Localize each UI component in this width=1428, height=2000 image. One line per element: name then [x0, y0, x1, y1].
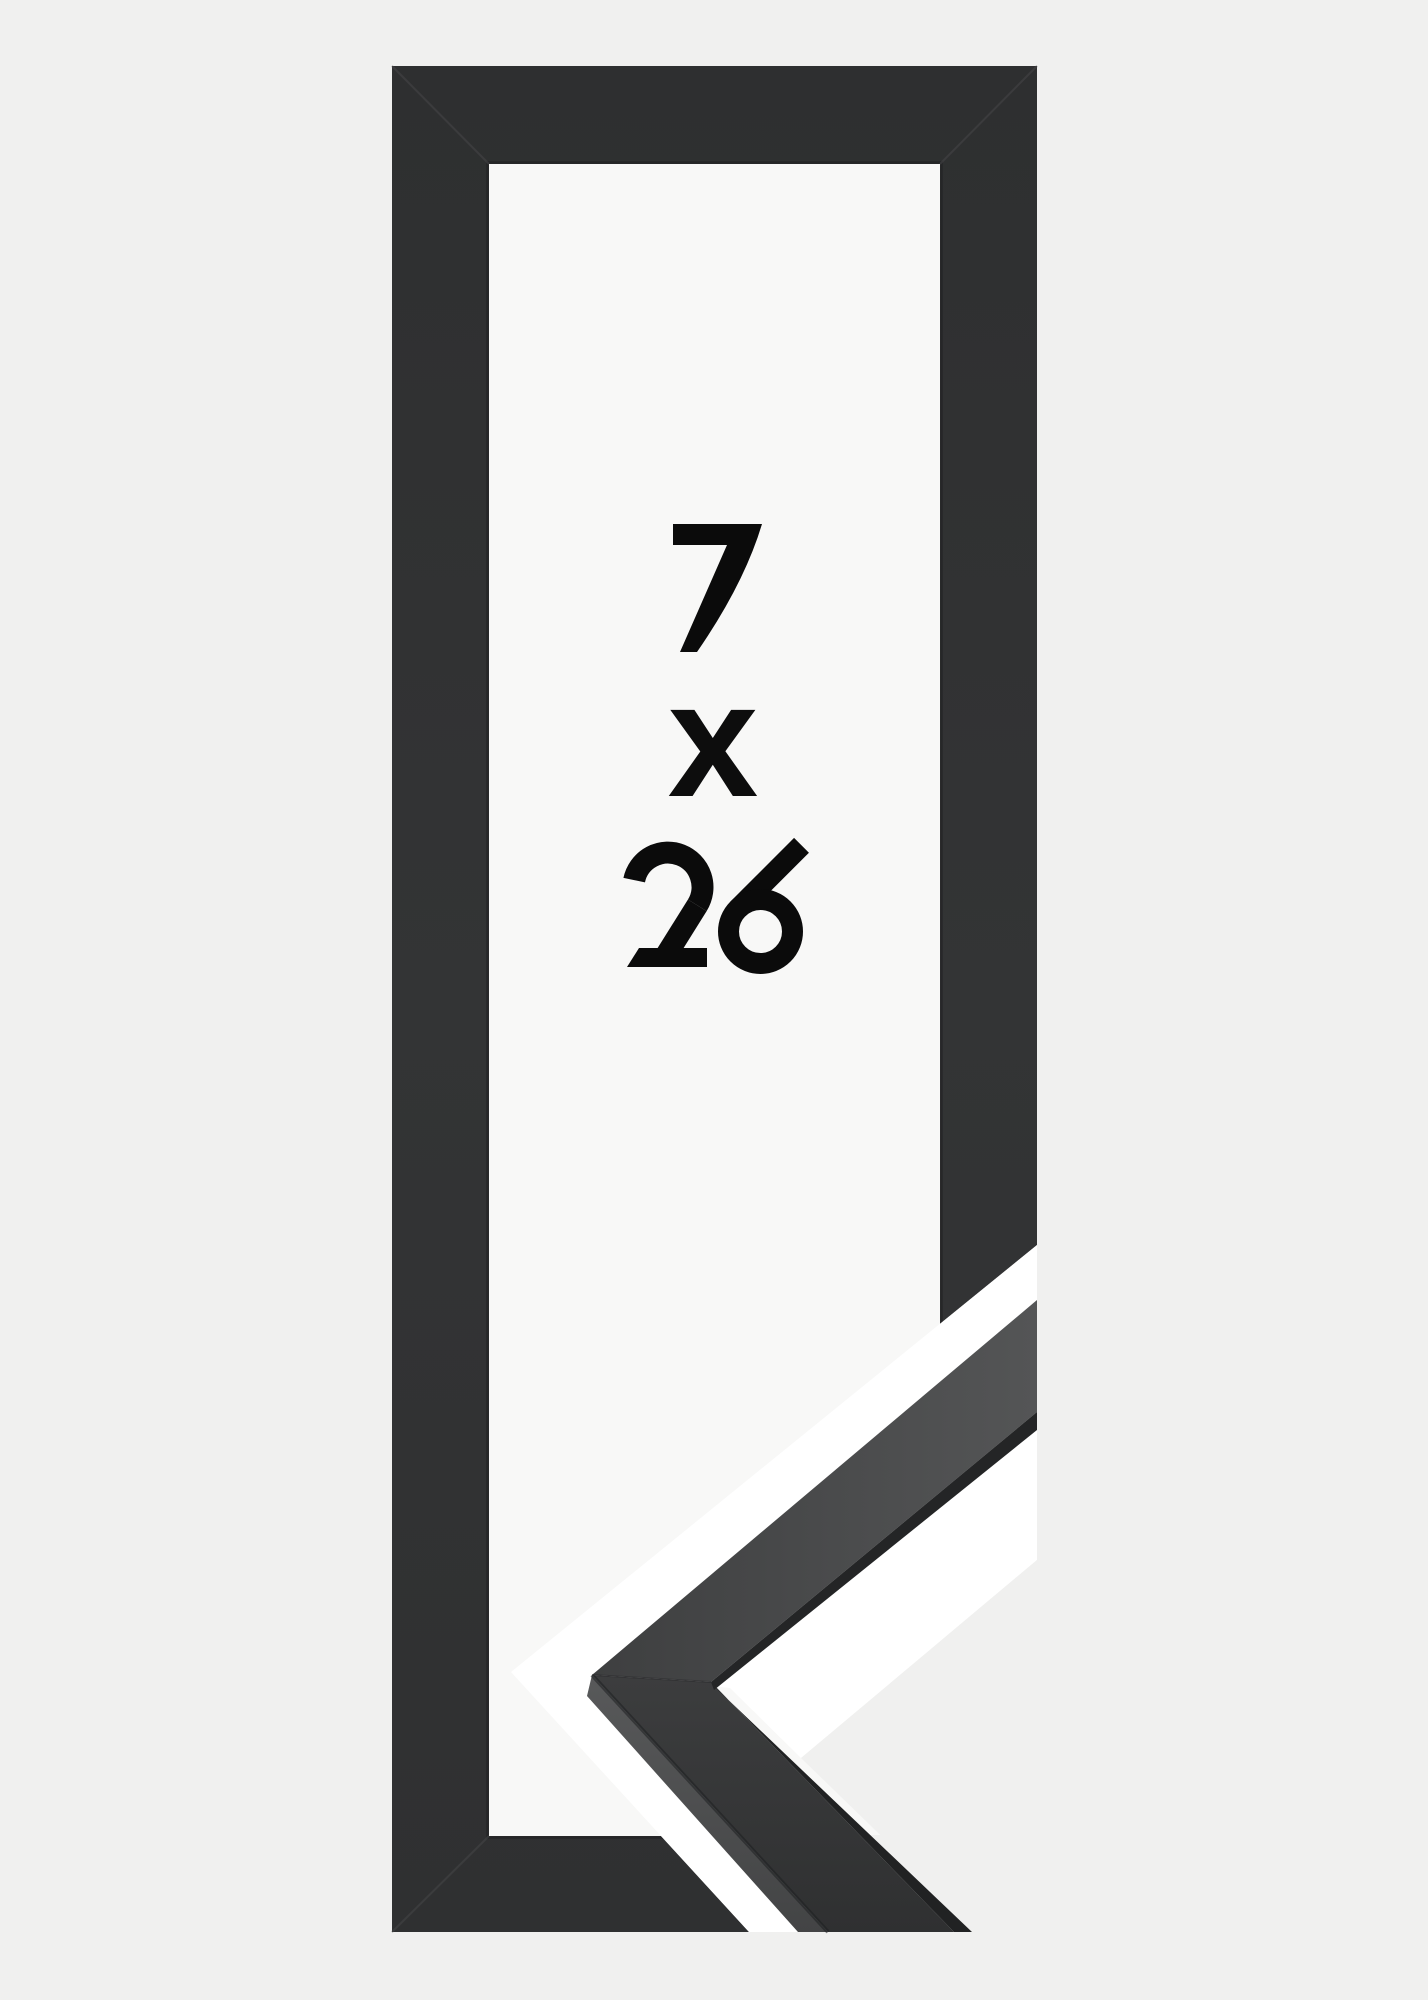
svg-text:x: x	[668, 648, 759, 831]
